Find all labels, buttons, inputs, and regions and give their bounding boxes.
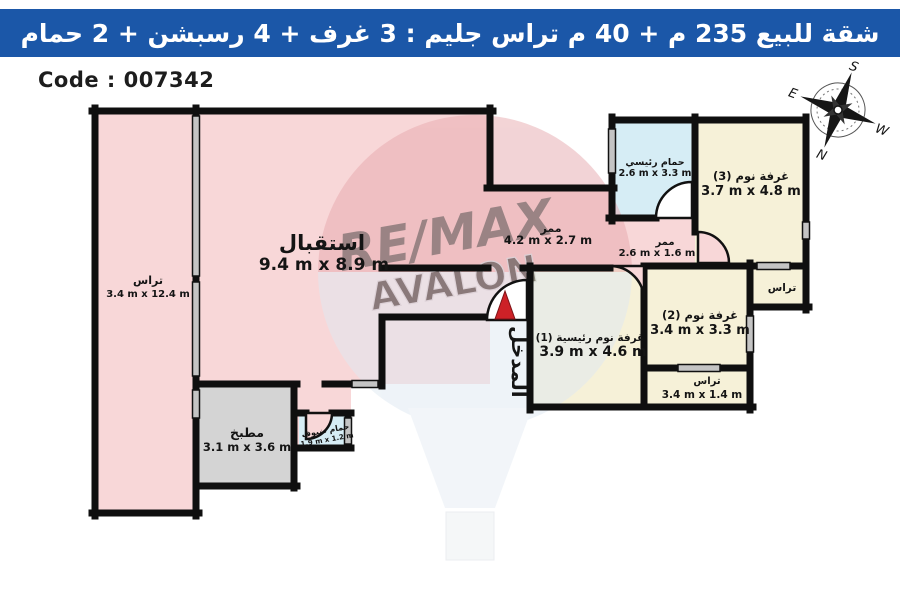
balloon-basket: [446, 512, 494, 560]
terrace-bottom-name: تراس: [693, 376, 720, 387]
compass-north-label: N: [814, 147, 829, 165]
reception-dims: 9.4 m x 8.9 m: [259, 255, 389, 275]
terrace-left-fill: [95, 108, 196, 513]
window-terrace-upper: [193, 116, 200, 276]
terrace-bottom-dims: 3.4 m x 1.4 m: [662, 389, 743, 401]
compass-east-label: E: [786, 86, 800, 103]
balloon-neck: [408, 408, 532, 508]
window-terrace-lower: [193, 282, 200, 376]
reception-name: استقبال: [279, 231, 365, 255]
window-reception-bottom: [352, 381, 378, 388]
compass-south-label: S: [847, 59, 860, 76]
terrace-bottom-fill: [644, 368, 750, 407]
master-bedroom-dims: 3.9 m x 4.6 m: [539, 344, 646, 360]
master-bath-dims: 2.6 m x 3.3 m: [619, 168, 692, 179]
window-master-bath: [609, 129, 616, 173]
bedroom-2-dims: 3.4 m x 3.3 m: [650, 323, 750, 338]
floorplan-svg: RE/MAX AVALON ا: [0, 0, 900, 600]
window-kitchen: [193, 390, 200, 418]
corridor-a-dims: 4.2 m x 2.7 m: [504, 233, 592, 247]
bedroom-2-name: غرفة نوم (2): [662, 308, 738, 323]
terrace-left-name: تراس: [133, 274, 163, 287]
kitchen-dims: 3.1 m x 3.6 m: [203, 440, 291, 454]
master-bath-name: حمام رئيسي: [625, 157, 684, 168]
terrace-left-dims: 3.4 m x 12.4 m: [106, 289, 190, 300]
floorplan-page: شقة للبيع 235 م + 40 م تراس جليم : 3 غرف…: [0, 0, 900, 600]
terrace-right-name: تراس: [768, 282, 797, 294]
kitchen-name: مطبخ: [230, 425, 264, 440]
entrance-label: المدخل: [507, 326, 531, 398]
window-terrace-right: [757, 263, 790, 270]
compass-west-label: W: [873, 121, 891, 140]
window-bedroom3-right: [803, 222, 810, 239]
bedroom-3-dims: 3.7 m x 4.8 m: [701, 184, 801, 199]
corridor-b-dims: 2.6 m x 1.6 m: [619, 248, 696, 259]
window-terrace-bottom: [678, 365, 720, 372]
bedroom-3-name: غرفة نوم (3): [713, 169, 789, 184]
master-bedroom-name: غرفة نوم رئيسية (1): [536, 332, 645, 344]
corridor-b-name: ممر: [654, 237, 674, 248]
